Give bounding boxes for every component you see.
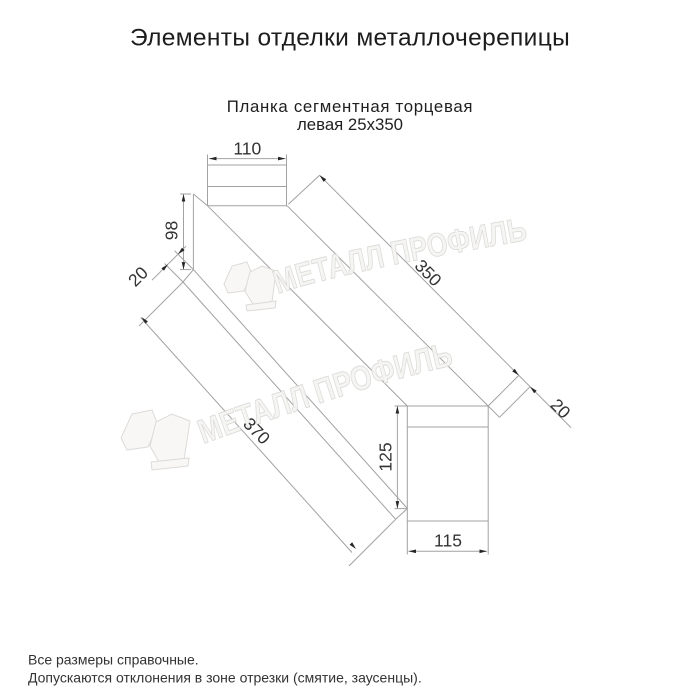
svg-text:125: 125	[376, 442, 396, 471]
svg-text:МЕТАЛЛ ПРОФИЛЬ: МЕТАЛЛ ПРОФИЛЬ	[193, 336, 456, 452]
svg-text:Допускаются отклонения в зоне: Допускаются отклонения в зоне отрезки (с…	[28, 670, 422, 686]
svg-text:20: 20	[547, 395, 575, 423]
svg-text:98: 98	[162, 221, 182, 240]
svg-text:110: 110	[233, 139, 261, 159]
svg-text:левая 25х350: левая 25х350	[297, 115, 403, 134]
svg-text:МЕТАЛЛ ПРОФИЛЬ: МЕТАЛЛ ПРОФИЛЬ	[268, 210, 529, 300]
svg-text:20: 20	[124, 262, 152, 290]
svg-text:Планка сегментная торцевая: Планка сегментная торцевая	[227, 97, 473, 116]
svg-text:Элементы отделки металлочерепи: Элементы отделки металлочерепицы	[130, 24, 570, 51]
svg-text:Все размеры справочные.: Все размеры справочные.	[28, 652, 199, 668]
svg-text:115: 115	[434, 531, 462, 551]
